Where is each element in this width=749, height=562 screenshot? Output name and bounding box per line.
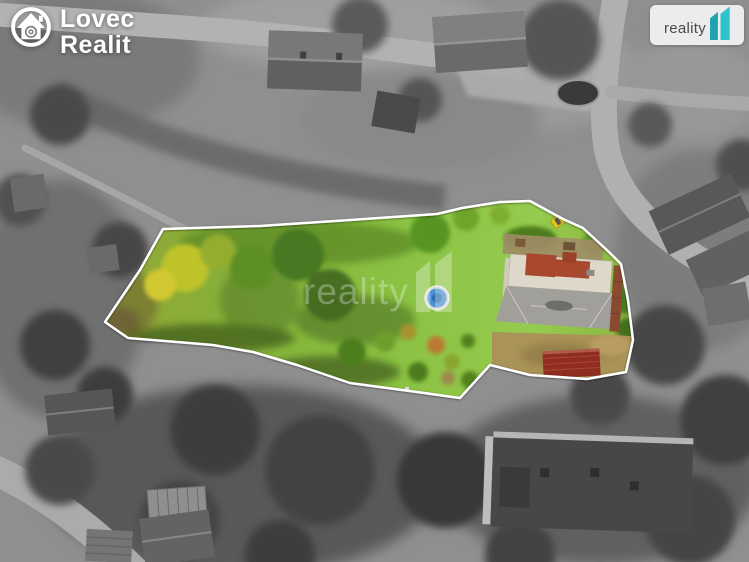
portal-badge: reality [650, 5, 744, 45]
reality-11-icon [709, 6, 732, 40]
agency-logo-text: Lovec Realit [60, 6, 135, 58]
red-shed [542, 349, 600, 379]
portal-badge-label: reality [664, 20, 706, 37]
listing-photo: Lovec Realit reality reality [0, 0, 749, 562]
gray-pool-cover [557, 80, 599, 106]
agency-logo-line1: Lovec [60, 6, 135, 32]
large-building-south [482, 431, 693, 533]
house-north-1 [267, 30, 363, 91]
house-lens-logo-icon [10, 6, 52, 48]
agency-logo-line2: Realit [60, 32, 135, 58]
house-north-2 [432, 11, 528, 73]
agency-logo: Lovec Realit [10, 6, 135, 58]
pool [425, 286, 449, 310]
aerial-photo [0, 0, 749, 562]
